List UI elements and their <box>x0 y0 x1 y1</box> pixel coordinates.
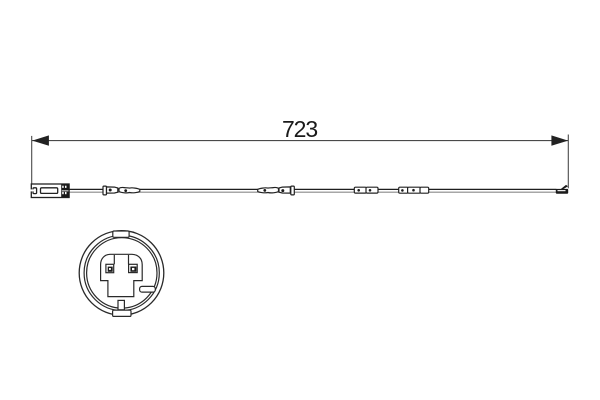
svg-text:723: 723 <box>282 116 317 142</box>
